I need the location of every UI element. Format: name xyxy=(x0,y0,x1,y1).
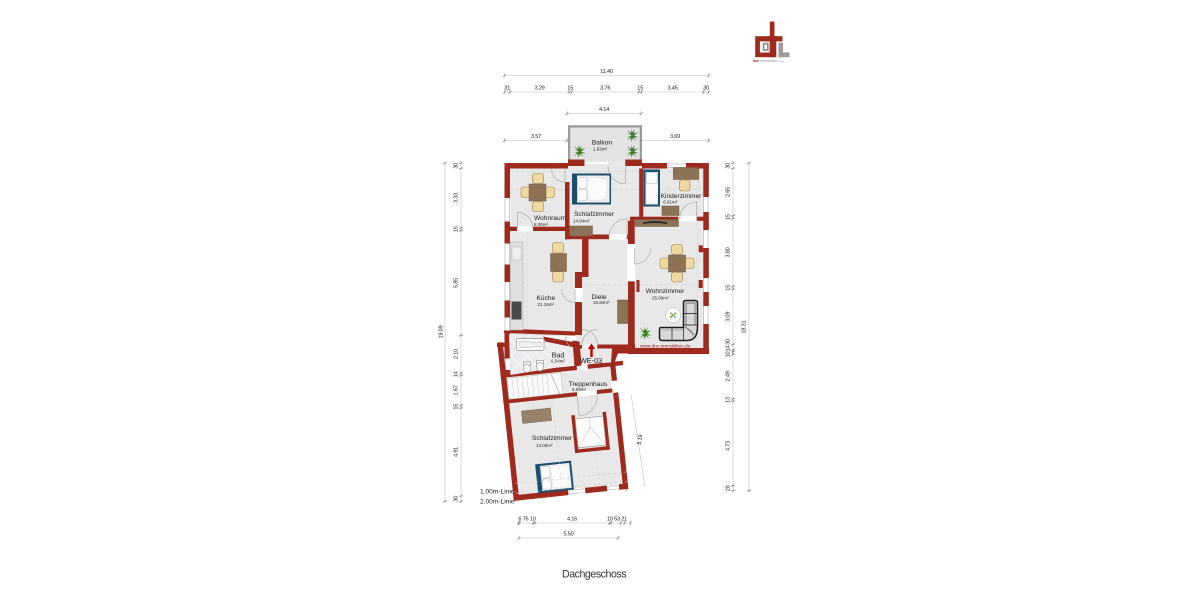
svg-text:19.09: 19.09 xyxy=(439,325,445,338)
svg-text:2.10: 2.10 xyxy=(454,349,460,359)
svg-text:15: 15 xyxy=(567,86,573,92)
svg-text:4.16: 4.16 xyxy=(567,517,577,523)
svg-text:21.15m²: 21.15m² xyxy=(538,302,555,307)
svg-text:15: 15 xyxy=(637,86,643,92)
svg-text:1.00m-Linie: 1.00m-Linie xyxy=(480,489,515,496)
svg-text:30: 30 xyxy=(703,86,709,92)
svg-text:1.93m²: 1.93m² xyxy=(593,147,608,152)
svg-text:25.09m²: 25.09m² xyxy=(652,296,669,301)
svg-text:Küche: Küche xyxy=(537,295,556,302)
svg-text:10: 10 xyxy=(726,352,732,358)
svg-text:Wohnzimmer: Wohnzimmer xyxy=(646,288,686,295)
svg-text:15: 15 xyxy=(454,226,460,232)
svg-text:1.67: 1.67 xyxy=(454,385,460,395)
svg-text:5.50: 5.50 xyxy=(563,532,573,538)
svg-text:3.80: 3.80 xyxy=(726,247,732,257)
svg-text:Balkon: Balkon xyxy=(592,140,612,147)
svg-text:4.73: 4.73 xyxy=(726,441,732,451)
svg-text:30: 30 xyxy=(726,339,732,345)
svg-text:13.06m²: 13.06m² xyxy=(536,443,553,448)
svg-text:11.40: 11.40 xyxy=(600,69,613,75)
svg-text:13: 13 xyxy=(726,397,732,403)
svg-text:15: 15 xyxy=(726,285,732,291)
svg-text:30: 30 xyxy=(726,163,732,169)
svg-text:30: 30 xyxy=(454,496,460,502)
svg-text:3.76: 3.76 xyxy=(600,86,610,92)
svg-text:30: 30 xyxy=(454,163,460,169)
svg-text:www.dnc-immobilien.de: www.dnc-immobilien.de xyxy=(640,344,691,350)
svg-text:15: 15 xyxy=(454,404,460,410)
svg-text:28: 28 xyxy=(726,485,732,491)
svg-text:4.91: 4.91 xyxy=(454,447,460,457)
svg-text:14.94m²: 14.94m² xyxy=(573,219,590,224)
svg-text:31: 31 xyxy=(504,86,510,92)
svg-text:3.69: 3.69 xyxy=(670,134,680,140)
svg-text:14: 14 xyxy=(726,346,732,352)
svg-text:2.65: 2.65 xyxy=(726,187,732,197)
svg-text:3.29: 3.29 xyxy=(534,86,544,92)
svg-text:3.09: 3.09 xyxy=(726,312,732,322)
svg-text:3.57: 3.57 xyxy=(531,134,541,140)
svg-text:Schlafzimmer: Schlafzimmer xyxy=(574,211,615,218)
svg-text:WE-03: WE-03 xyxy=(580,356,603,365)
svg-text:3.33: 3.33 xyxy=(454,193,460,203)
svg-text:3.45: 3.45 xyxy=(667,86,677,92)
svg-text:2.00m-Linie: 2.00m-Linie xyxy=(480,499,515,506)
svg-text:15.84m²: 15.84m² xyxy=(593,300,610,305)
svg-text:5.85: 5.85 xyxy=(454,278,460,288)
svg-text:8.36m²: 8.36m² xyxy=(534,222,549,227)
svg-text:6.54m²: 6.54m² xyxy=(551,359,566,364)
svg-text:10 53 21: 10 53 21 xyxy=(607,517,627,523)
svg-text:Schlafzimmer: Schlafzimmer xyxy=(532,435,573,442)
svg-text:4.14: 4.14 xyxy=(599,107,609,113)
svg-text:6.09m²: 6.09m² xyxy=(572,387,587,392)
svg-text:6.91m²: 6.91m² xyxy=(663,200,678,205)
svg-text:Wohnraum: Wohnraum xyxy=(534,215,567,222)
svg-text:Dachgeschoss: Dachgeschoss xyxy=(562,569,626,581)
svg-text:2.49: 2.49 xyxy=(726,371,732,381)
svg-text:15: 15 xyxy=(726,214,732,220)
svg-text:14: 14 xyxy=(454,371,460,377)
svg-text:18.31: 18.31 xyxy=(742,320,748,333)
